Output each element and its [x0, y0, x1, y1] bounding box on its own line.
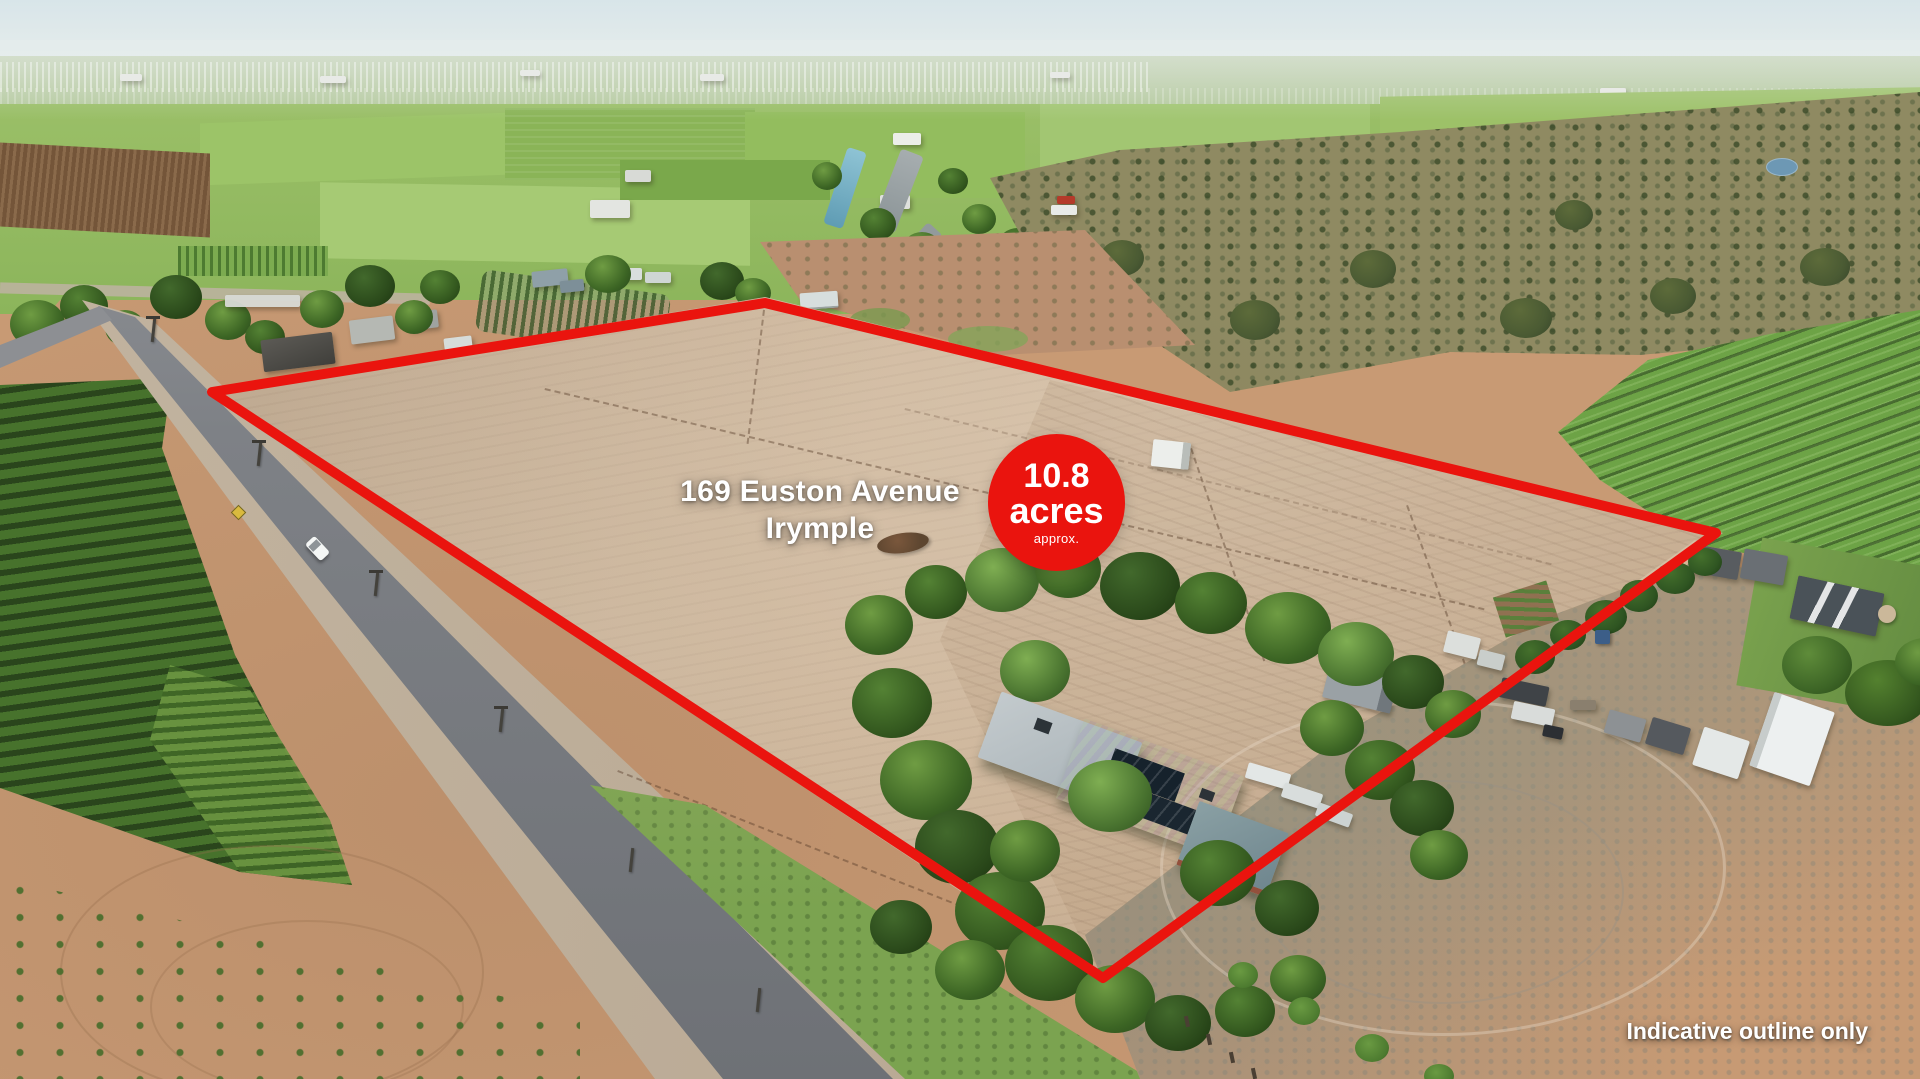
tree: [1068, 760, 1152, 832]
tree: [1410, 830, 1468, 880]
power-pole-crossarm: [369, 570, 383, 573]
distant-shed: [625, 170, 651, 182]
bush: [1650, 278, 1696, 314]
field-patch: [620, 160, 830, 200]
bush: [1500, 298, 1552, 338]
tree: [845, 595, 913, 655]
distant-shed: [893, 133, 921, 145]
car-windshield: [308, 539, 321, 552]
tree: [345, 265, 395, 307]
tree: [1270, 955, 1326, 1003]
power-pole-crossarm: [494, 706, 508, 709]
pallets: [1570, 700, 1596, 710]
tree: [395, 300, 433, 334]
tree: [1075, 965, 1155, 1033]
area-unit: acres: [1009, 493, 1103, 528]
tree: [1180, 840, 1256, 906]
tree: [1145, 995, 1211, 1051]
aerial-property-photo: 169 Euston Avenue Irymple 10.8 acres app…: [0, 0, 1920, 1079]
haze: [0, 40, 1920, 120]
tree: [150, 275, 202, 319]
tree: [585, 255, 631, 293]
tree: [1100, 552, 1180, 620]
neighbor-roof: [559, 279, 584, 293]
tree: [962, 204, 996, 234]
distant-shed: [590, 200, 630, 218]
red-container: [1057, 196, 1075, 204]
tree: [1300, 700, 1364, 756]
hedge-tree: [1585, 600, 1627, 634]
tree: [1255, 880, 1319, 936]
vineyard-patch: [178, 246, 328, 276]
hedge-tree: [1550, 620, 1586, 650]
address-line-1: 169 Euston Avenue: [655, 473, 985, 510]
area-qualifier: approx.: [1034, 532, 1079, 546]
tree: [990, 820, 1060, 882]
tree: [1782, 636, 1852, 694]
hedge-tree: [1515, 640, 1555, 674]
tree: [300, 290, 344, 328]
bush: [1555, 200, 1593, 230]
yard-sapling: [1355, 1034, 1389, 1062]
tree: [870, 900, 932, 954]
pond: [1766, 158, 1798, 176]
yard-sapling: [1228, 962, 1258, 988]
area-badge: 10.8 acres approx.: [988, 434, 1125, 571]
area-value: 10.8: [1023, 460, 1089, 493]
hedge-tree: [1620, 580, 1658, 612]
power-pole-crossarm: [146, 316, 160, 319]
tree: [1390, 780, 1454, 836]
white-marquee: [1051, 205, 1077, 215]
address-line-2: Irymple: [655, 510, 985, 547]
tree: [1175, 572, 1247, 634]
tree: [860, 208, 896, 240]
tree: [812, 162, 842, 190]
tree: [880, 740, 972, 820]
tree: [905, 565, 967, 619]
disclaimer-text: Indicative outline only: [1626, 1018, 1868, 1045]
water-tank: [1878, 605, 1896, 623]
tree: [1425, 690, 1481, 738]
hedge-tree: [1688, 548, 1722, 576]
bush: [1230, 300, 1280, 340]
tree: [1000, 640, 1070, 702]
white-hut: [1151, 439, 1192, 470]
tree: [938, 168, 968, 194]
bush: [1350, 250, 1396, 288]
bush: [1800, 248, 1850, 286]
caravan: [645, 272, 671, 283]
property-address: 169 Euston Avenue Irymple: [655, 473, 985, 547]
plowed-field: [0, 142, 210, 237]
tree: [1215, 985, 1275, 1037]
tree: [935, 940, 1005, 1000]
tree: [420, 270, 460, 304]
white-fence-shed: [225, 295, 300, 307]
blue-bin: [1595, 630, 1610, 644]
yard-sapling: [1288, 997, 1320, 1025]
tree: [852, 668, 932, 738]
field-patch: [200, 113, 510, 186]
power-pole-crossarm: [252, 440, 266, 443]
